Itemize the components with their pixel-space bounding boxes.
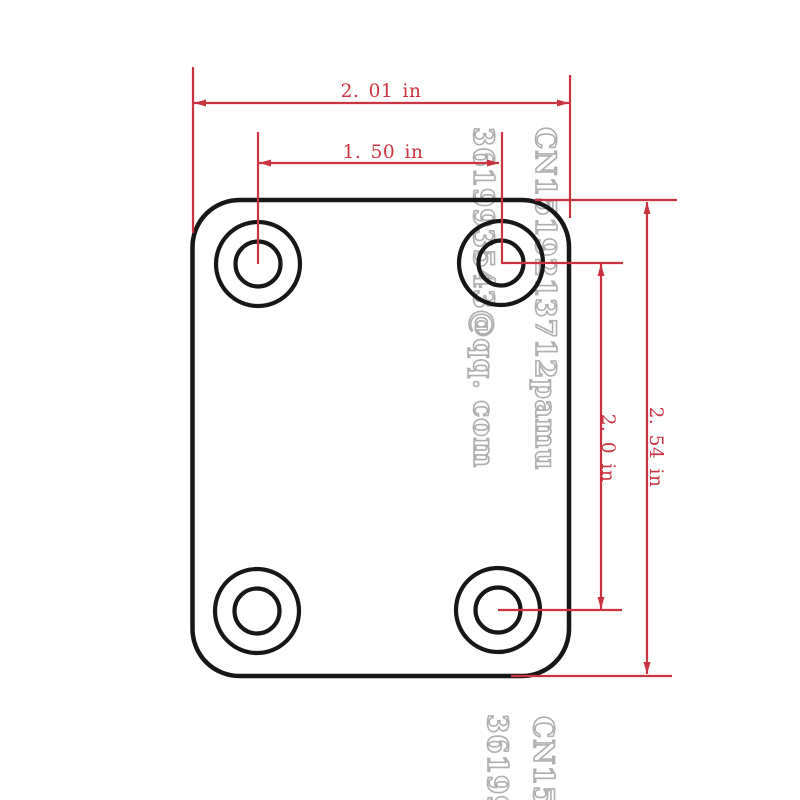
drawing-background [0, 0, 800, 800]
watermark-email-text-bottom: 361993543@qq. com [481, 714, 514, 800]
watermark-seller-id-text-bottom: CN1519213712pamu [527, 716, 560, 800]
label-hole-spacing-horizontal: 1. 50 in [343, 142, 424, 163]
technical-drawing: 361993543@qq. com CN1519213712pamu 36199… [0, 0, 800, 800]
watermark-seller-id-text: CN1519213712pamu [529, 127, 562, 470]
label-overall-height: 2. 54 in [645, 407, 666, 488]
label-overall-width: 2. 01 in [341, 81, 422, 102]
label-hole-spacing-vertical: 2. 0 in [597, 414, 618, 483]
drawing-canvas: 361993543@qq. com CN1519213712pamu 36199… [0, 0, 800, 800]
watermark-email-text: 361993543@qq. com [467, 127, 500, 468]
